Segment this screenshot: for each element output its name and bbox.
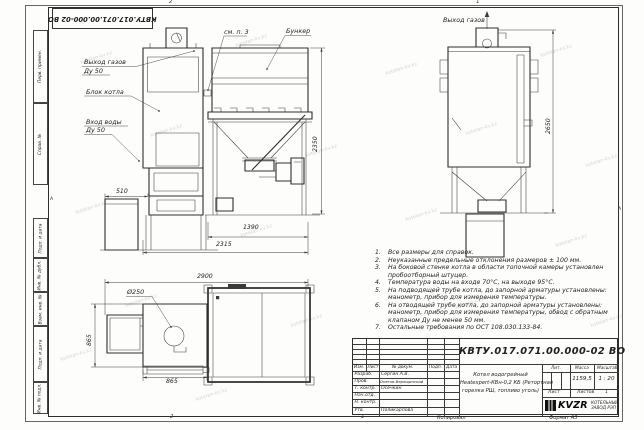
- tb-product-line: Котел водогрейный: [460, 371, 541, 379]
- note-item: 1.Все размеры для справок.: [375, 249, 628, 257]
- dim-2650: 2650: [546, 118, 552, 134]
- note-item: 5.На подводящей трубе котла, до запорной…: [375, 287, 628, 302]
- tb-scale-value: 1 : 20: [594, 377, 619, 383]
- tb-col-data: Дата: [446, 366, 457, 370]
- note-item: 3.На боковой стенке котла в области топо…: [375, 264, 628, 279]
- tb-line: [353, 349, 459, 350]
- callout-see-note-3: см. п. 3: [224, 29, 249, 35]
- note-text: Остальные требования по ОСТ 108.030.133-…: [388, 324, 628, 332]
- kvzr-emblem-icon: [545, 400, 556, 411]
- tb-line: [542, 397, 619, 398]
- note-number: 3.: [375, 264, 388, 279]
- dim-2350: 2350: [313, 136, 319, 152]
- tb-col-list: Лист: [368, 366, 379, 370]
- callout-gas-outlet-front: Выход газов: [84, 59, 126, 65]
- title-block: Изм. Лист № докум. Подп. Дата Разраб. Се…: [352, 338, 618, 415]
- company-name: КОТЕЛЬНЫЙ ЗАВОД РЭП: [591, 400, 618, 410]
- technical-notes: 1.Все размеры для справок. 2.Неуказанные…: [375, 249, 628, 332]
- tb-name: Онегов-Верещинский: [380, 380, 423, 384]
- dim-1390: 1390: [243, 225, 259, 231]
- note-text: Неуказанные предельные отклонения размер…: [388, 257, 628, 265]
- tb-product-line: Heatexpert-КВн-0,2 КБ (Ретортная: [460, 379, 541, 387]
- tb-product-line: горелка РШ, топливо уголь): [460, 387, 541, 395]
- tb-scale-label: Масштаб: [597, 367, 617, 371]
- tb-mass-value: 1159,5: [570, 377, 594, 383]
- tb-line: [353, 354, 459, 355]
- tb-sheet-label: Лист: [548, 391, 560, 396]
- tb-line: [353, 359, 459, 360]
- tb-lit-label: Лит.: [551, 367, 561, 371]
- callout-water-inlet-du50: Ду 50: [86, 127, 105, 133]
- note-text: Температура воды на входе 70°С, на выход…: [388, 279, 628, 287]
- callout-gas-outlet-side: Выход газов: [443, 17, 485, 23]
- tb-sheets-value: 1: [605, 391, 608, 396]
- tb-line: [561, 372, 562, 389]
- logo-text: KVZR: [558, 400, 588, 411]
- note-number: 2.: [375, 257, 388, 265]
- dim-865-vertical: 865: [87, 334, 93, 346]
- copied-label: Копировал: [437, 416, 466, 421]
- tb-mass-label: Масса: [575, 367, 589, 371]
- note-text: На боковой стенке котла в области топочн…: [388, 264, 628, 279]
- dim-2900: 2900: [197, 274, 213, 280]
- tb-doc-number: КВТУ.017.071.00.000-02 ВО: [459, 347, 619, 357]
- callout-gas-outlet-du50: Ду 50: [84, 68, 103, 74]
- note-number: 7.: [375, 324, 388, 332]
- tb-role: Разраб.: [355, 373, 373, 378]
- tb-name: Поликарпова: [381, 409, 413, 414]
- note-text: На подводящей трубе котла, до запорной а…: [388, 287, 628, 302]
- tb-name: Сергин А.В.: [381, 373, 409, 378]
- tb-role: Т. контр.: [355, 387, 376, 392]
- tb-role: Нач.отд.: [355, 394, 376, 399]
- tb-col-izm: Изм.: [354, 366, 364, 370]
- note-item: 6.На отводящей трубе котла, до запорной …: [375, 302, 628, 325]
- tb-role: Пров.: [355, 380, 368, 385]
- note-text: Все размеры для справок.: [388, 249, 628, 257]
- tb-col-doc: № докум.: [392, 366, 413, 370]
- tb-line: [542, 372, 619, 373]
- callout-water-inlet: Вход воды: [86, 119, 122, 125]
- callout-bunker: Бункер: [286, 28, 310, 34]
- callout-boiler-block: Блок котла: [86, 89, 124, 95]
- note-number: 6.: [375, 302, 388, 325]
- note-item: 4.Температура воды на входе 70°С, на вых…: [375, 279, 628, 287]
- company-line: ЗАВОД РЭП: [591, 405, 618, 410]
- tb-sheets-label: Листов: [577, 391, 594, 396]
- drawing-sheet: kotelan-kv.kz kotelan-kv.kz kotelan-kv.k…: [0, 0, 644, 430]
- tb-line: [353, 344, 459, 345]
- note-item: 7.Остальные требования по ОСТ 108.030.13…: [375, 324, 628, 332]
- note-text: На отводящей трубе котла, до запорной ар…: [388, 302, 628, 325]
- tb-role: Утв.: [355, 409, 365, 414]
- tb-col-podp: Подп.: [429, 366, 442, 370]
- dim-2315: 2315: [216, 242, 232, 248]
- dim-510: 510: [116, 189, 128, 195]
- tb-role: Н. контр.: [355, 401, 377, 406]
- dim-865-horizontal: 865: [166, 379, 178, 385]
- company-logo: KVZR: [545, 400, 588, 411]
- tb-product-name: Котел водогрейный Heatexpert-КВн-0,2 КБ …: [460, 371, 541, 395]
- note-number: 4.: [375, 279, 388, 287]
- callout-diameter-250: Ø250: [127, 289, 144, 295]
- note-number: 1.: [375, 249, 388, 257]
- format-label: Формат А3: [549, 416, 577, 421]
- tb-name: Осечкин: [381, 387, 401, 392]
- note-number: 5.: [375, 287, 388, 302]
- note-item: 2.Неуказанные предельные отклонения разм…: [375, 257, 628, 265]
